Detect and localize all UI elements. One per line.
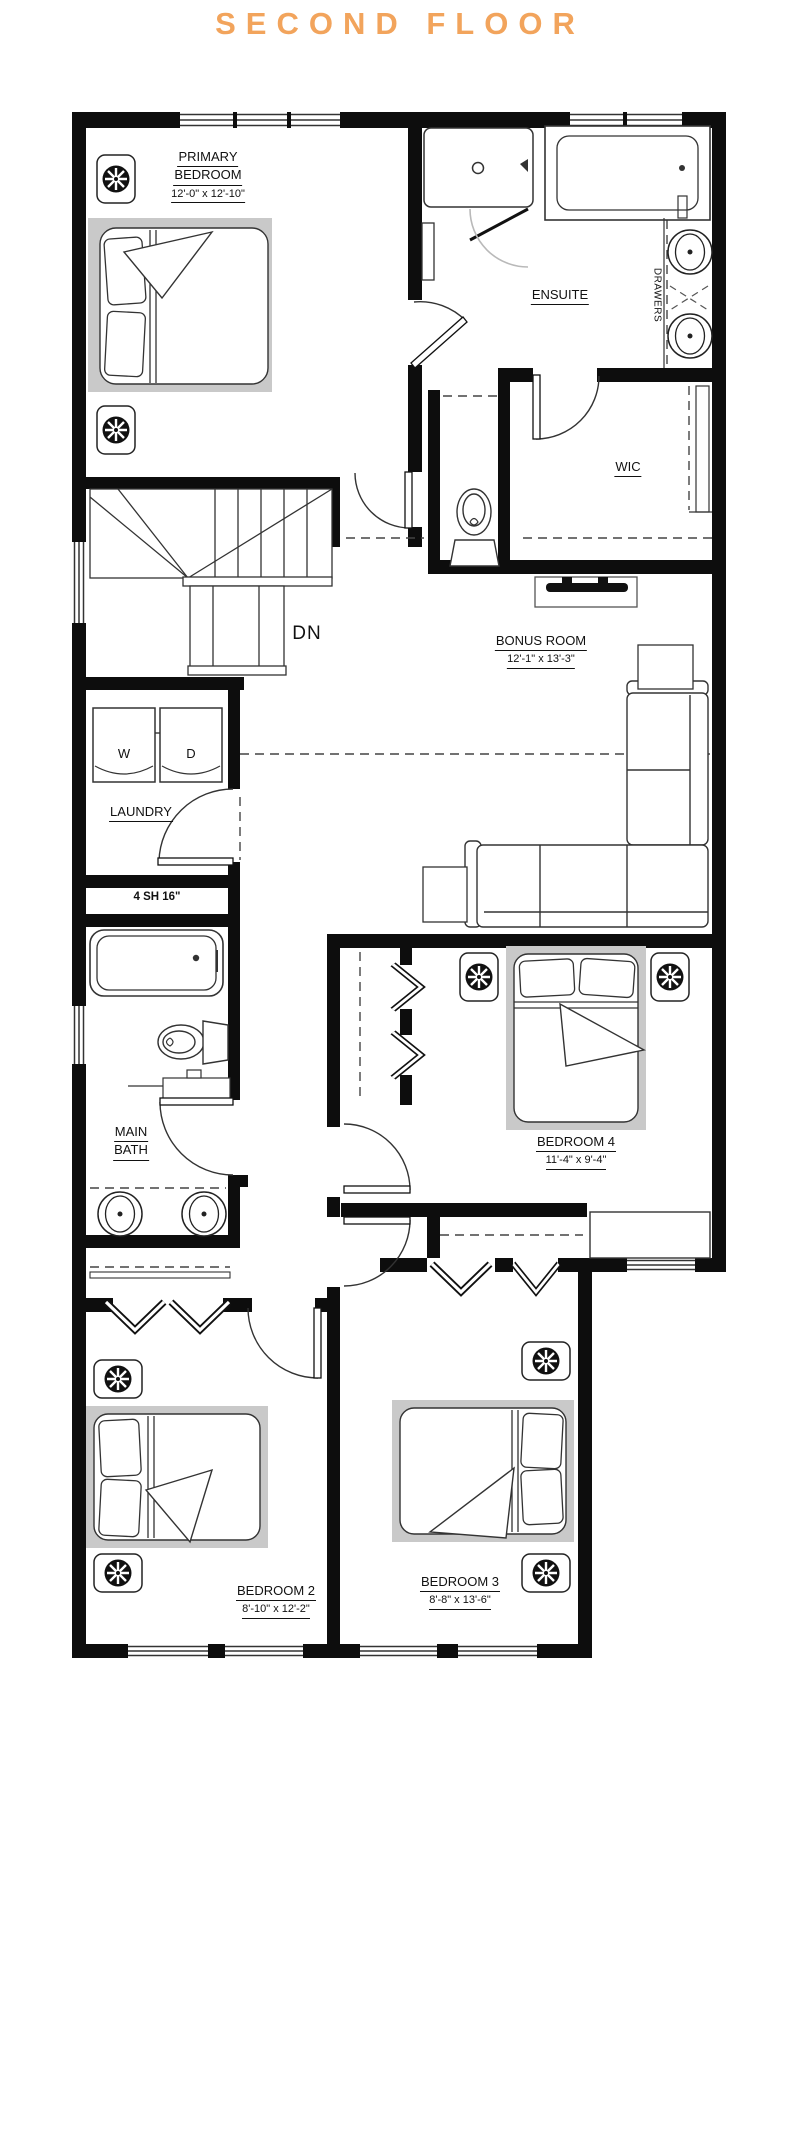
laundry-door[interactable] bbox=[158, 789, 233, 865]
end-table bbox=[638, 645, 693, 689]
washer bbox=[93, 708, 155, 782]
staircase bbox=[90, 489, 332, 675]
room-label-bedroom-2: BEDROOM 2 8'-10" x 12'-2" bbox=[236, 1583, 316, 1619]
room-label-bonus-room: BONUS ROOM 12'-1" x 13'-3" bbox=[495, 633, 587, 669]
bedroom4-door[interactable] bbox=[344, 1124, 410, 1193]
room-label-main-bath: MAIN BATH bbox=[113, 1124, 149, 1161]
toilet bbox=[450, 489, 499, 566]
dryer-label: D bbox=[186, 746, 195, 762]
stairs-dn-label: DN bbox=[292, 622, 321, 646]
bifold-closet-door[interactable] bbox=[393, 964, 421, 1009]
main-bath-tub bbox=[90, 930, 223, 996]
bifold-closet-door[interactable] bbox=[393, 1032, 421, 1077]
ceiling-fan-icon bbox=[651, 953, 689, 1001]
ensuite-shower bbox=[424, 128, 533, 267]
ceiling-fan-icon bbox=[522, 1342, 570, 1380]
ceiling-fan-icon bbox=[97, 155, 135, 203]
ceiling-fan-icon bbox=[97, 406, 135, 454]
room-label-wic: WIC bbox=[614, 459, 641, 477]
wic-shelving bbox=[689, 386, 712, 512]
page-title: SECOND FLOOR bbox=[215, 6, 585, 42]
toilet bbox=[158, 1021, 228, 1064]
ensuite-door[interactable] bbox=[411, 302, 467, 368]
bedroom2-bed bbox=[86, 1406, 268, 1548]
sink bbox=[668, 314, 712, 358]
ceiling-fan-icon bbox=[94, 1360, 142, 1398]
primary-bed bbox=[88, 218, 272, 392]
bedroom4-bed bbox=[506, 946, 646, 1130]
ceiling-fan-icon bbox=[460, 953, 498, 1001]
ceiling-fan-icon bbox=[522, 1554, 570, 1592]
bedroom3-bed bbox=[392, 1400, 574, 1542]
wic-door[interactable] bbox=[533, 375, 599, 439]
linen-closet-label: 4 SH 16" bbox=[133, 890, 180, 904]
wall-mirror bbox=[422, 223, 434, 280]
room-label-bedroom-3: BEDROOM 3 8'-8" x 13'-6" bbox=[420, 1574, 500, 1610]
towel-shelf bbox=[128, 1070, 230, 1100]
main-bath-door[interactable] bbox=[160, 1098, 233, 1175]
dresser bbox=[590, 1212, 710, 1258]
bedroom2-door[interactable] bbox=[248, 1308, 321, 1378]
window-primary-bedroom bbox=[180, 112, 340, 128]
bedroom2-closet-shelf bbox=[90, 1272, 230, 1278]
room-label-laundry: LAUNDRY bbox=[109, 804, 173, 822]
ceiling-fan-icon bbox=[94, 1554, 142, 1592]
window-stairs bbox=[72, 542, 86, 623]
sink bbox=[182, 1192, 226, 1236]
tv-unit bbox=[535, 577, 637, 607]
primary-bedroom-door[interactable] bbox=[355, 472, 412, 528]
ensuite-tub bbox=[545, 126, 710, 220]
floor-plan-page: SECOND FLOOR PRIMARY BEDROOM 12'-0" x 12… bbox=[0, 0, 800, 2150]
bifold-closet-door[interactable] bbox=[432, 1264, 490, 1292]
sink bbox=[668, 230, 712, 274]
room-label-primary-bedroom: PRIMARY BEDROOM 12'-0" x 12'-10" bbox=[171, 149, 245, 203]
floor-plan-canvas bbox=[0, 0, 800, 2150]
room-label-bedroom-4: BEDROOM 4 11'-4" x 9'-4" bbox=[536, 1134, 616, 1170]
drawers-label: DRAWERS bbox=[652, 268, 663, 322]
dryer bbox=[160, 708, 222, 782]
sink bbox=[98, 1192, 142, 1236]
bedroom3-door[interactable] bbox=[344, 1217, 410, 1286]
bifold-closet-door[interactable] bbox=[513, 1264, 558, 1292]
sectional-sofa bbox=[465, 681, 708, 927]
window-main-bath bbox=[72, 1006, 86, 1064]
room-label-ensuite: ENSUITE bbox=[531, 287, 589, 305]
side-table bbox=[423, 867, 467, 922]
bifold-closet-door[interactable] bbox=[106, 1302, 164, 1330]
bifold-closet-door[interactable] bbox=[171, 1302, 229, 1330]
window-bedroom4 bbox=[627, 1258, 695, 1272]
washer-label: W bbox=[118, 746, 130, 762]
